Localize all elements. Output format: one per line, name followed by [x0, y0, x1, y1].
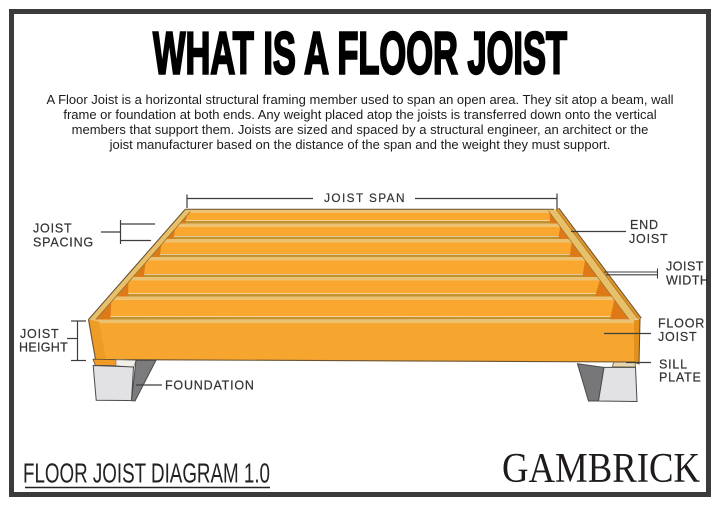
svg-text:SPACING: SPACING	[33, 236, 94, 250]
svg-text:FOUNDATION: FOUNDATION	[165, 379, 255, 393]
svg-text:members that support them. Joi: members that support them. Joists are si…	[72, 122, 649, 137]
svg-text:WHAT IS A FLOOR JOIST: WHAT IS A FLOOR JOIST	[153, 21, 567, 87]
svg-text:joist manufacturer based on th: joist manufacturer based on the distance…	[109, 137, 611, 152]
svg-text:frame or foundation at both en: frame or foundation at both ends. Any we…	[63, 107, 656, 122]
svg-text:HEIGHT: HEIGHT	[19, 341, 68, 355]
svg-text:WIDTH: WIDTH	[666, 274, 709, 288]
svg-text:JOIST: JOIST	[33, 222, 72, 236]
svg-text:PLATE: PLATE	[659, 371, 702, 385]
svg-text:A Floor Joist is a horizontal: A Floor Joist is a horizontal structural…	[47, 92, 674, 107]
svg-text:JOIST: JOIST	[658, 330, 697, 344]
svg-text:GAMBRICK: GAMBRICK	[502, 446, 700, 492]
svg-text:END: END	[630, 218, 659, 232]
svg-text:JOIST: JOIST	[20, 327, 59, 341]
svg-text:SILL: SILL	[659, 358, 688, 372]
svg-text:JOIST: JOIST	[666, 260, 704, 274]
svg-text:FLOOR JOIST DIAGRAM 1.0: FLOOR JOIST DIAGRAM 1.0	[23, 458, 270, 489]
svg-text:FLOOR: FLOOR	[658, 317, 705, 331]
svg-text:JOIST: JOIST	[629, 232, 668, 246]
svg-text:JOIST SPAN: JOIST SPAN	[324, 191, 406, 205]
